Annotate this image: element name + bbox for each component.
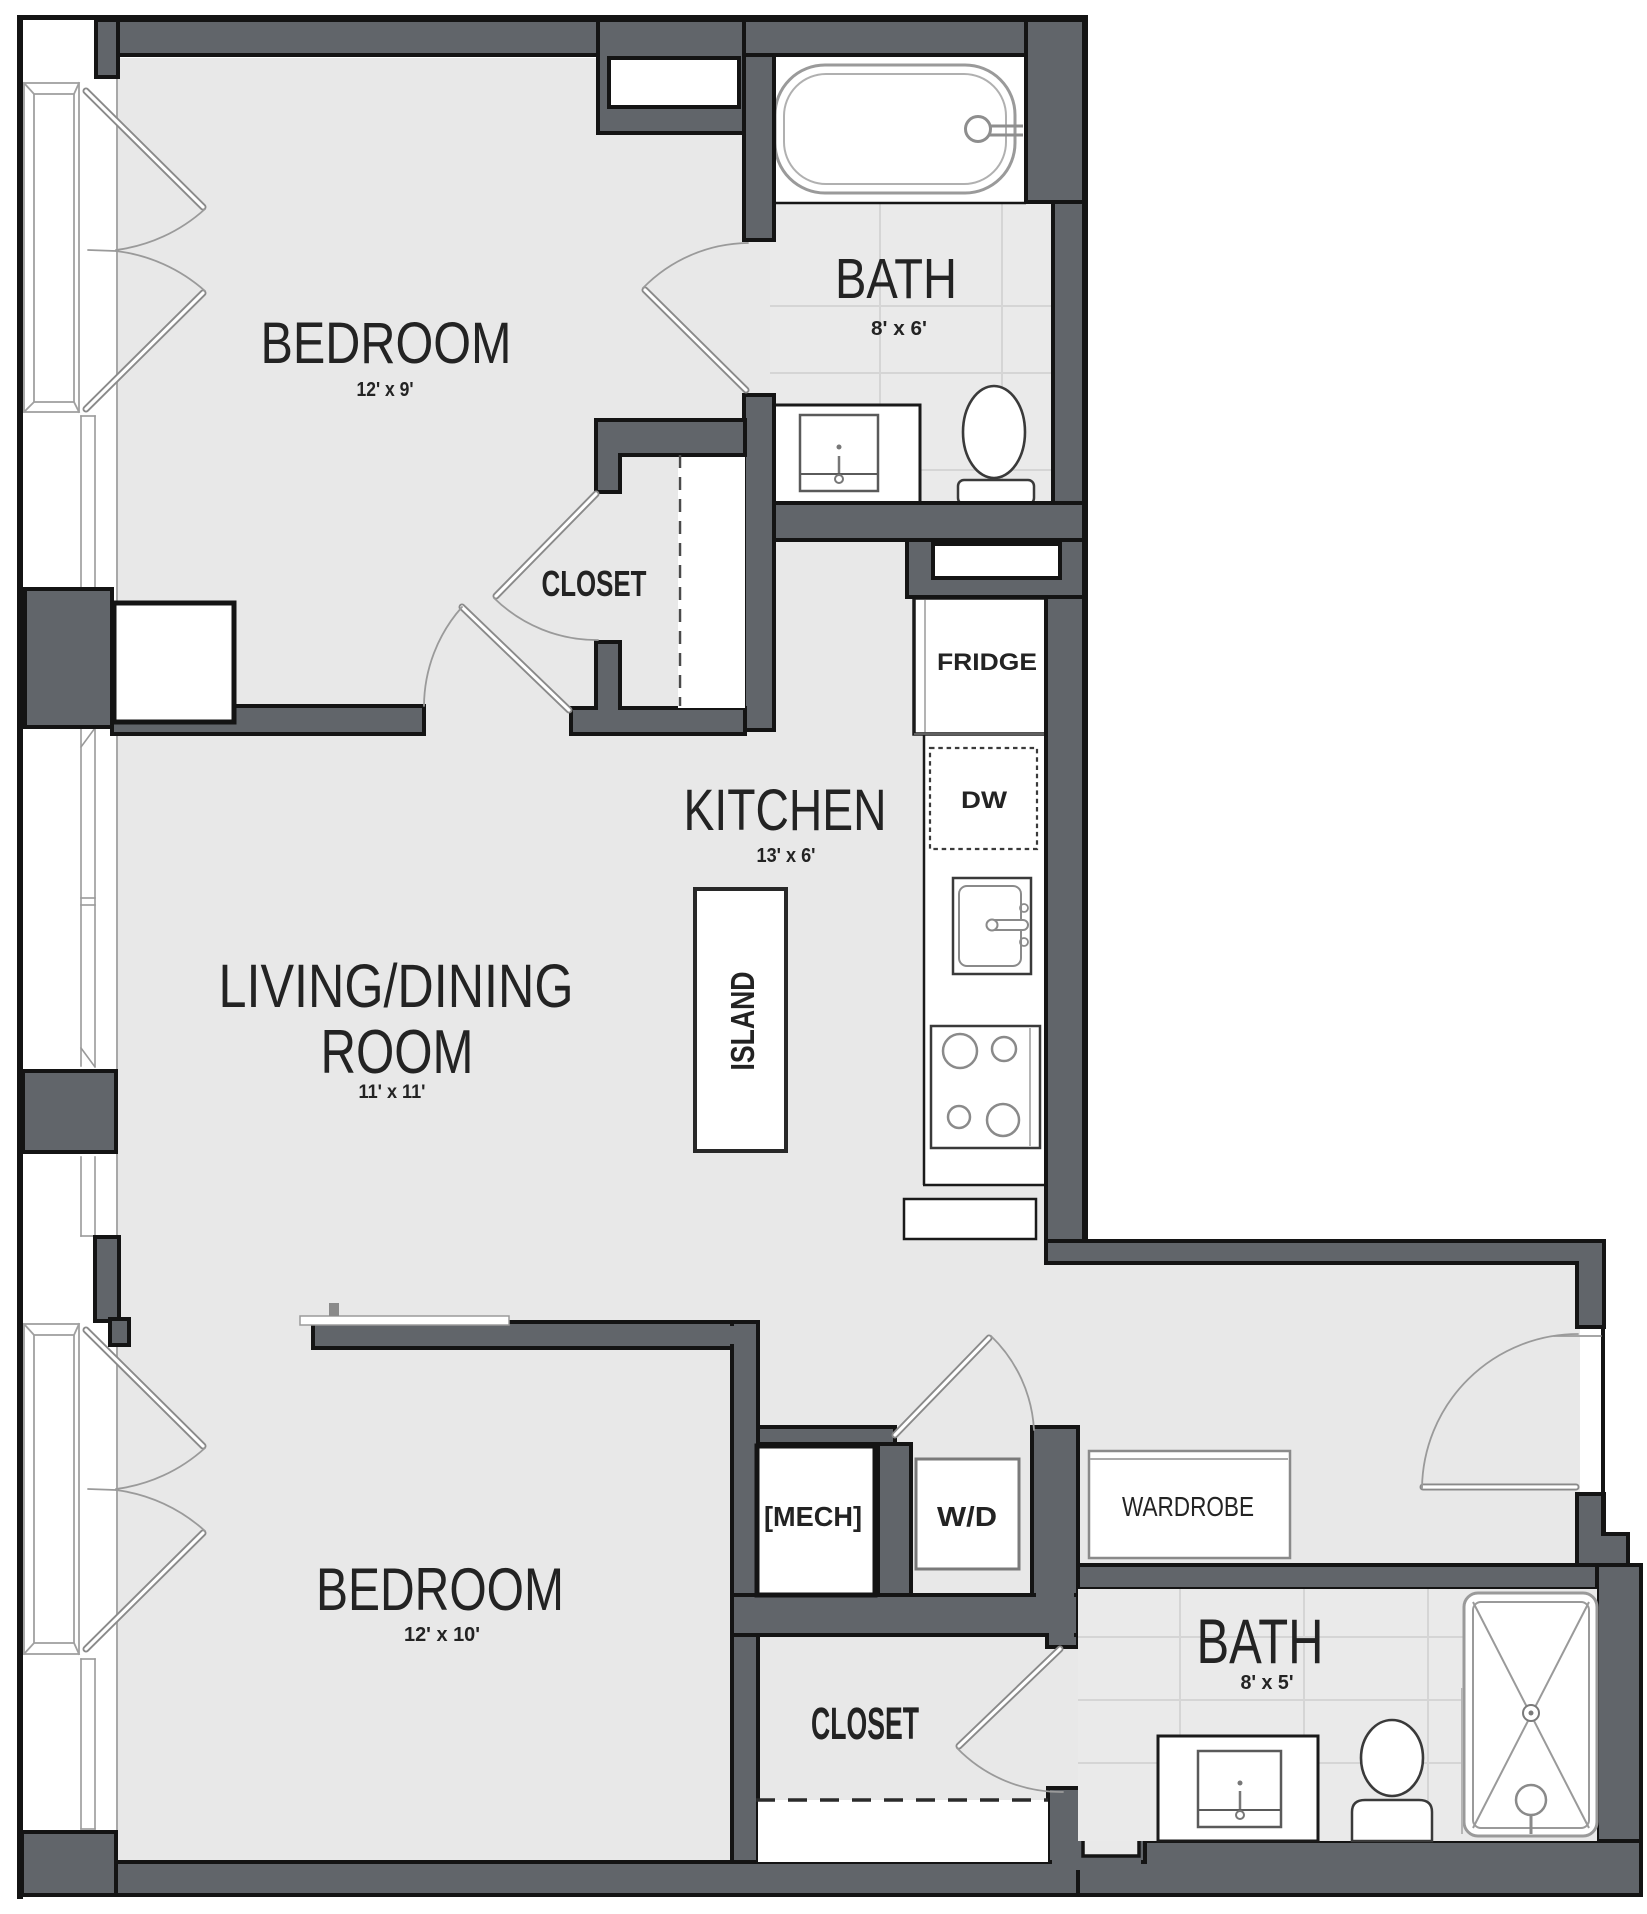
- svg-text:ISLAND: ISLAND: [724, 972, 761, 1071]
- svg-text:BEDROOM: BEDROOM: [261, 311, 512, 376]
- svg-text:LIVING/DINING: LIVING/DINING: [219, 952, 574, 1020]
- svg-text:13' x 6': 13' x 6': [757, 845, 816, 867]
- svg-text:12' x 9': 12' x 9': [357, 379, 414, 401]
- svg-text:[MECH]: [MECH]: [764, 1501, 862, 1532]
- svg-text:CLOSET: CLOSET: [542, 563, 647, 604]
- svg-text:BATH: BATH: [1197, 1607, 1324, 1677]
- svg-text:BEDROOM: BEDROOM: [316, 1556, 564, 1623]
- svg-text:BATH: BATH: [835, 247, 957, 311]
- svg-text:12' x 10': 12' x 10': [404, 1624, 480, 1646]
- svg-text:DW: DW: [961, 787, 1007, 814]
- svg-text:11' x 11': 11' x 11': [359, 1082, 426, 1103]
- svg-text:WARDROBE: WARDROBE: [1122, 1491, 1254, 1522]
- svg-text:W/D: W/D: [937, 1501, 997, 1532]
- svg-text:FRIDGE: FRIDGE: [937, 649, 1037, 676]
- svg-text:KITCHEN: KITCHEN: [684, 778, 887, 843]
- svg-text:8' x 6': 8' x 6': [871, 318, 927, 340]
- svg-text:8' x 5': 8' x 5': [1241, 1672, 1294, 1694]
- svg-text:CLOSET: CLOSET: [811, 1698, 919, 1749]
- svg-text:ROOM: ROOM: [321, 1018, 474, 1087]
